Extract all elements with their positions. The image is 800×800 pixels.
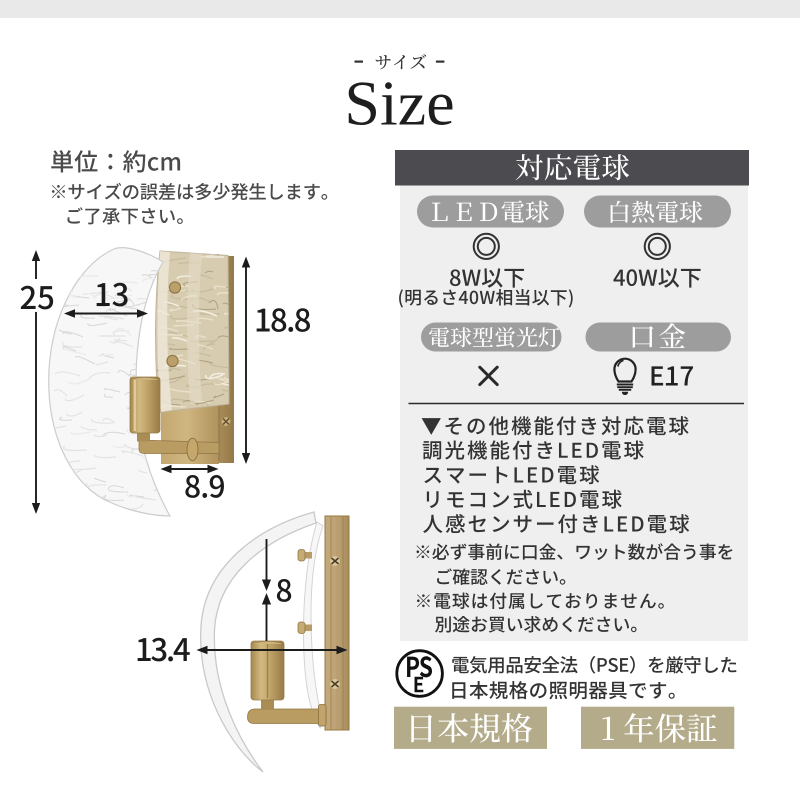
svg-text:Size: Size [344, 68, 454, 139]
